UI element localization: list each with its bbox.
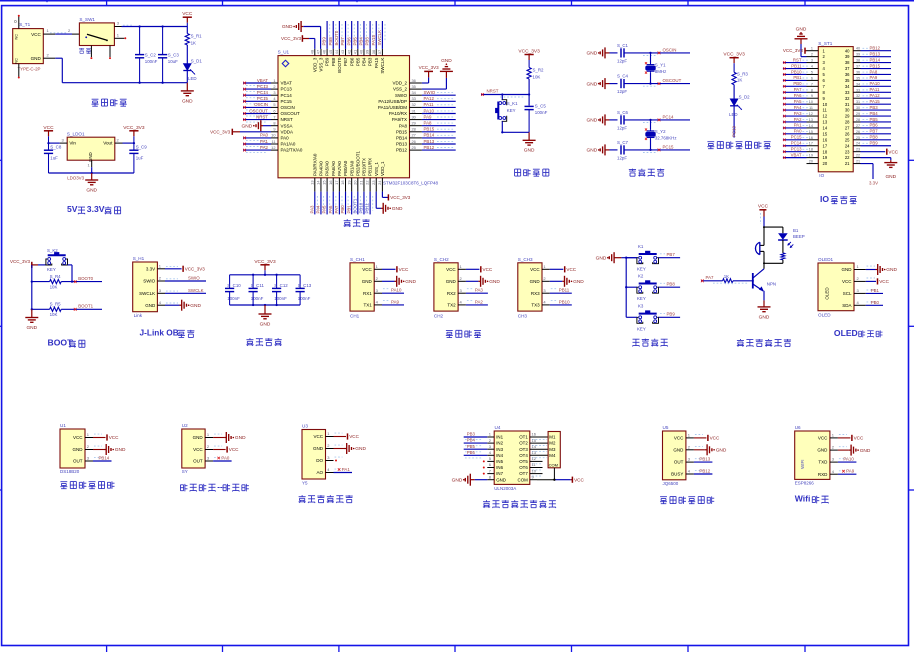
svg-text:PA15: PA15	[870, 99, 881, 104]
svg-text:100nF: 100nF	[145, 59, 158, 64]
svg-text:PA0: PA0	[221, 456, 230, 461]
svg-text:30: 30	[856, 106, 860, 110]
svg-text:38: 38	[856, 59, 860, 63]
svg-text:PB1: PB1	[346, 205, 351, 214]
svg-text:IN2: IN2	[496, 441, 503, 446]
svg-text:PB3: PB3	[368, 57, 373, 66]
svg-text:PA5/A0: PA5/A0	[325, 161, 330, 176]
svg-text:33: 33	[856, 88, 860, 92]
svg-text:34: 34	[845, 84, 850, 89]
svg-text:OUT: OUT	[73, 459, 83, 464]
svg-text:OLED: OLED	[818, 312, 831, 317]
svg-text:38: 38	[845, 60, 850, 65]
svg-text:PB6: PB6	[346, 37, 351, 46]
svg-text:BEEP: BEEP	[793, 234, 805, 239]
svg-text:VCC: VCC	[399, 267, 409, 272]
svg-text:12: 12	[823, 114, 828, 119]
svg-text:PA5: PA5	[322, 205, 327, 214]
svg-text:33: 33	[845, 90, 850, 95]
svg-text:U1: U1	[60, 423, 66, 428]
svg-text:PC14: PC14	[281, 93, 293, 98]
svg-text:PB12: PB12	[699, 469, 710, 474]
svg-text:PA4/A0: PA4/A0	[319, 161, 324, 176]
svg-text:5: 5	[811, 70, 813, 74]
svg-text:CH3: CH3	[518, 313, 528, 318]
svg-text:23: 23	[845, 149, 850, 154]
svg-text:PB8: PB8	[328, 37, 333, 46]
svg-text:M3: M3	[549, 447, 556, 452]
svg-text:PB9: PB9	[667, 311, 676, 316]
svg-text:PA7: PA7	[706, 275, 715, 280]
svg-text:IO: IO	[819, 173, 824, 178]
svg-text:M2: M2	[549, 441, 556, 446]
svg-text:39: 39	[365, 50, 370, 54]
svg-text:VCC: VCC	[530, 267, 540, 272]
svg-text:PC13: PC13	[257, 84, 269, 89]
svg-text:VCC: VCC	[362, 267, 372, 272]
svg-text:PA10: PA10	[870, 81, 881, 86]
svg-text:OSCIN: OSCIN	[281, 105, 295, 110]
svg-text:S_H1: S_H1	[133, 256, 145, 261]
svg-text:35: 35	[845, 78, 850, 83]
svg-text:IN4: IN4	[496, 453, 503, 458]
svg-text:PB11: PB11	[365, 203, 370, 214]
svg-text:PB3: PB3	[870, 105, 879, 110]
svg-text:PA11: PA11	[870, 87, 880, 92]
svg-text:CH1: CH1	[350, 313, 360, 318]
svg-text:GND: GND	[392, 206, 403, 212]
svg-text:PA2/TX/A0: PA2/TX/A0	[281, 148, 303, 153]
svg-text:PB14: PB14	[870, 57, 881, 62]
svg-text:8: 8	[811, 88, 813, 92]
svg-text:VCC_3V3: VCC_3V3	[10, 259, 31, 264]
svg-text:23: 23	[856, 148, 860, 152]
svg-text:28: 28	[845, 120, 850, 125]
svg-text:Vout: Vout	[103, 141, 113, 146]
svg-text:BOOT0: BOOT0	[78, 276, 93, 281]
svg-text:S_R4: S_R4	[50, 274, 62, 279]
svg-text:S_R5: S_R5	[50, 302, 62, 307]
svg-text:GND: GND	[587, 118, 598, 124]
svg-text:S_D1: S_D1	[191, 58, 203, 63]
svg-text:S_T1: S_T1	[19, 22, 30, 27]
svg-text:38: 38	[371, 50, 376, 54]
svg-text:IN5: IN5	[496, 459, 503, 464]
svg-text:VCC: VCC	[182, 11, 193, 17]
svg-text:VCC_3V3: VCC_3V3	[123, 125, 145, 131]
svg-text:PA11/USB/DM: PA11/USB/DM	[378, 105, 407, 110]
svg-text:VSS_3: VSS_3	[319, 57, 324, 72]
svg-text:LDO3V3: LDO3V3	[67, 176, 84, 181]
svg-text:IN6: IN6	[496, 465, 503, 470]
svg-text:S_R1: S_R1	[191, 34, 203, 39]
svg-text:15: 15	[322, 181, 327, 185]
svg-text:S_CH1: S_CH1	[350, 257, 365, 262]
svg-text:10uF: 10uF	[168, 59, 178, 64]
svg-text:26: 26	[412, 139, 416, 144]
svg-text:16: 16	[328, 181, 333, 185]
svg-text:S_C7: S_C7	[617, 140, 629, 145]
svg-text:PA3/RX/A0: PA3/RX/A0	[312, 153, 317, 176]
svg-text:VCC_3V3: VCC_3V3	[783, 48, 804, 53]
svg-text:PB15: PB15	[396, 129, 408, 134]
svg-text:OLED1: OLED1	[818, 257, 834, 262]
svg-text:10: 10	[823, 102, 828, 107]
svg-text:100nF: 100nF	[251, 296, 264, 301]
svg-text:S_K2: S_K2	[47, 248, 58, 253]
svg-text:3.3V: 3.3V	[869, 181, 878, 186]
svg-text:OT3: OT3	[519, 447, 528, 452]
svg-text:10: 10	[532, 468, 537, 473]
svg-text:100nF: 100nF	[298, 296, 311, 301]
svg-text:10: 10	[809, 100, 813, 104]
svg-text:PC14: PC14	[663, 114, 675, 119]
svg-text:19: 19	[809, 154, 813, 158]
svg-text:25: 25	[856, 136, 860, 140]
svg-text:NRST: NRST	[487, 89, 499, 94]
svg-text:PA12: PA12	[870, 93, 881, 98]
svg-text:GND: GND	[886, 267, 897, 273]
svg-text:32: 32	[845, 96, 850, 101]
svg-text:13: 13	[532, 450, 537, 455]
svg-text:GND: GND	[88, 152, 93, 162]
svg-text:PB2/BOOT1: PB2/BOOT1	[355, 150, 360, 176]
svg-text:OSCOUT: OSCOUT	[663, 78, 682, 83]
svg-text:5: 5	[273, 102, 275, 107]
svg-text:GND: GND	[587, 51, 598, 57]
svg-text:VCC: VCC	[758, 204, 769, 210]
svg-text:GND: GND	[355, 446, 366, 452]
svg-text:OSCIN: OSCIN	[254, 102, 268, 107]
svg-text:40: 40	[856, 47, 860, 51]
svg-text:1: 1	[273, 78, 275, 83]
svg-text:VCC_3V3: VCC_3V3	[518, 49, 540, 55]
svg-text:8: 8	[273, 121, 275, 126]
svg-text:PB3: PB3	[365, 37, 370, 46]
svg-text:PA6/A0: PA6/A0	[331, 161, 336, 176]
svg-text:PB1/A0: PB1/A0	[349, 160, 354, 176]
svg-text:GND: GND	[115, 447, 126, 453]
svg-text:31: 31	[856, 100, 860, 104]
svg-text:RX1: RX1	[363, 291, 372, 296]
svg-text:GND: GND	[496, 477, 506, 482]
svg-text:PB6: PB6	[349, 57, 354, 66]
svg-text:S_K1: S_K1	[507, 101, 518, 106]
svg-text:37: 37	[845, 66, 850, 71]
svg-text:GND: GND	[405, 279, 416, 285]
svg-text:OT4: OT4	[519, 453, 528, 458]
svg-text:IN1: IN1	[496, 435, 503, 440]
svg-text:PB0/A0: PB0/A0	[343, 160, 348, 176]
svg-text:B1: B1	[793, 228, 799, 233]
svg-text:OUT: OUT	[674, 460, 684, 465]
svg-text:13: 13	[309, 181, 314, 185]
svg-text:PB13: PB13	[424, 139, 435, 144]
svg-text:PB7: PB7	[667, 252, 676, 257]
svg-text:GND: GND	[31, 56, 42, 61]
svg-text:PA6: PA6	[794, 93, 802, 98]
svg-text:10K: 10K	[50, 312, 58, 317]
svg-text:GND: GND	[145, 303, 156, 308]
svg-text:AO: AO	[316, 470, 323, 475]
svg-text:KEY: KEY	[637, 326, 646, 331]
svg-text:16: 16	[823, 137, 828, 142]
svg-text:VCC_3V3: VCC_3V3	[210, 130, 231, 135]
svg-text:2: 2	[811, 53, 813, 57]
svg-text:42: 42	[346, 50, 351, 54]
svg-text:15: 15	[823, 131, 828, 136]
svg-text:PB10: PB10	[791, 69, 802, 74]
svg-text:S_Y2: S_Y2	[655, 129, 666, 134]
svg-text:PC13: PC13	[732, 125, 737, 137]
svg-text:25: 25	[412, 145, 416, 150]
svg-text:PC13: PC13	[281, 87, 293, 92]
svg-text:TYPE-C-2P: TYPE-C-2P	[18, 67, 41, 72]
svg-text:GND: GND	[596, 255, 607, 261]
svg-text:GND: GND	[190, 303, 201, 309]
svg-text:IN7: IN7	[496, 471, 503, 476]
svg-text:VCC: VCC	[674, 436, 684, 441]
svg-text:S_C3: S_C3	[168, 52, 180, 57]
svg-text:OSCOUT: OSCOUT	[281, 111, 301, 116]
svg-text:1: 1	[811, 47, 813, 51]
svg-text:3: 3	[811, 59, 813, 63]
svg-text:SWCLK: SWCLK	[139, 291, 155, 296]
svg-text:PA8: PA8	[424, 121, 433, 126]
svg-text:VDD_2: VDD_2	[392, 81, 407, 86]
svg-text:5V: 5V	[67, 204, 78, 214]
svg-text:27: 27	[412, 133, 416, 138]
svg-text:PA0: PA0	[794, 129, 802, 134]
svg-text:SCL: SCL	[843, 291, 852, 296]
svg-text:17: 17	[823, 143, 828, 148]
svg-text:PA15: PA15	[371, 35, 376, 46]
svg-text:40: 40	[845, 48, 850, 53]
svg-text:NC: NC	[14, 34, 18, 40]
svg-text:VCC: VCC	[109, 435, 119, 440]
svg-text:PA11: PA11	[424, 102, 435, 107]
svg-text:ULN2003A: ULN2003A	[494, 486, 516, 491]
svg-text:PC15: PC15	[257, 96, 269, 101]
svg-text:VCC: VCC	[854, 436, 864, 441]
svg-text:GND: GND	[235, 435, 246, 441]
svg-text:GND: GND	[362, 279, 373, 284]
svg-text:VBAT: VBAT	[281, 81, 293, 86]
svg-text:PB10: PB10	[359, 202, 364, 213]
svg-text:IN3: IN3	[496, 447, 503, 452]
svg-text:30: 30	[845, 108, 850, 113]
svg-text:20: 20	[809, 160, 813, 164]
svg-text:S_C12: S_C12	[274, 283, 288, 288]
svg-text:PA1: PA1	[794, 123, 802, 128]
svg-text:VCC: VCC	[888, 149, 898, 154]
svg-text:100nF: 100nF	[535, 110, 548, 115]
svg-text:PB1: PB1	[793, 75, 802, 80]
svg-text:VCC: VCC	[349, 434, 359, 439]
svg-text:PA12/USB/DP: PA12/USB/DP	[378, 99, 407, 104]
svg-text:M4: M4	[549, 453, 556, 458]
svg-text:PA0: PA0	[281, 136, 290, 141]
svg-text:1K: 1K	[191, 40, 196, 45]
svg-text:35: 35	[412, 84, 416, 89]
svg-text:PB12: PB12	[396, 148, 408, 153]
svg-text:PA3: PA3	[794, 111, 802, 116]
svg-text:S_R3: S_R3	[737, 71, 749, 76]
svg-text:OLED: OLED	[834, 328, 858, 338]
svg-text:OT6: OT6	[519, 465, 528, 470]
svg-text:PB0: PB0	[871, 300, 880, 305]
svg-text:GND: GND	[759, 314, 770, 320]
svg-text:18: 18	[809, 148, 813, 152]
svg-text:GND: GND	[817, 448, 828, 453]
svg-text:PA9: PA9	[870, 75, 878, 80]
svg-text:36: 36	[845, 72, 850, 77]
svg-text:19: 19	[346, 181, 351, 185]
svg-text:12: 12	[809, 112, 813, 116]
svg-text:22: 22	[845, 155, 850, 160]
svg-text:100nF: 100nF	[274, 296, 287, 301]
svg-text:35: 35	[856, 76, 860, 80]
svg-text:M1: M1	[549, 435, 556, 440]
svg-text:46: 46	[322, 50, 327, 54]
svg-text:S_CH2: S_CH2	[434, 257, 449, 262]
svg-text:VCC: VCC	[574, 477, 584, 482]
svg-text:PA4: PA4	[316, 205, 321, 214]
svg-text:PA6: PA6	[328, 205, 333, 214]
svg-text:STM32F103C8T6_LQFP48: STM32F103C8T6_LQFP48	[383, 181, 439, 186]
svg-text:VCC_3V3: VCC_3V3	[723, 52, 745, 58]
svg-text:OT7: OT7	[519, 471, 528, 476]
svg-text:PB14: PB14	[396, 136, 408, 141]
svg-text:BOOT0: BOOT0	[337, 57, 342, 73]
svg-text:PA7: PA7	[334, 205, 339, 214]
svg-text:IO: IO	[820, 194, 829, 204]
svg-text:PA7/A0: PA7/A0	[337, 161, 342, 176]
svg-text:9: 9	[273, 127, 275, 132]
svg-text:24: 24	[856, 142, 860, 146]
svg-text:VCC: VCC	[73, 435, 83, 440]
svg-text:S_C6: S_C6	[617, 110, 629, 115]
svg-text:GND: GND	[842, 267, 853, 272]
svg-text:15: 15	[809, 130, 813, 134]
svg-text:GND: GND	[573, 279, 584, 285]
svg-text:NPN: NPN	[767, 282, 776, 287]
svg-text:VCC: VCC	[566, 267, 576, 272]
svg-text:CH2: CH2	[434, 313, 444, 318]
svg-text:S_LDO1: S_LDO1	[67, 131, 85, 136]
svg-text:VCC: VCC	[710, 436, 720, 441]
svg-text:PC14: PC14	[257, 90, 269, 95]
svg-text:3.3V: 3.3V	[87, 204, 105, 214]
svg-text:GND: GND	[242, 123, 253, 129]
svg-text:28: 28	[412, 127, 416, 132]
svg-text:S_Y1: S_Y1	[655, 63, 666, 68]
svg-text:29: 29	[412, 121, 416, 126]
svg-text:ESP8266: ESP8266	[795, 480, 815, 485]
svg-text:KEY: KEY	[507, 108, 516, 113]
svg-text:6: 6	[273, 108, 275, 113]
svg-text:21: 21	[359, 181, 364, 185]
svg-text:VSSA: VSSA	[281, 123, 293, 128]
svg-text:PA2: PA2	[475, 299, 484, 304]
svg-text:VBAT: VBAT	[791, 152, 802, 157]
svg-text:Wifi: Wifi	[795, 493, 811, 503]
svg-text:PB14: PB14	[424, 133, 435, 138]
svg-text:S_C1: S_C1	[617, 43, 629, 48]
svg-text:3: 3	[273, 90, 275, 95]
svg-text:PB14: PB14	[99, 456, 110, 461]
svg-text:PB4: PB4	[467, 438, 476, 443]
svg-text:VCC: VCC	[446, 267, 456, 272]
svg-text:PA9: PA9	[424, 114, 433, 119]
svg-text:12: 12	[532, 456, 537, 461]
svg-text:15: 15	[532, 438, 537, 443]
svg-text:47: 47	[316, 50, 321, 54]
svg-text:PB0: PB0	[340, 205, 345, 214]
svg-text:SWCLK: SWCLK	[377, 30, 382, 46]
svg-text:VCC: VCC	[842, 279, 852, 284]
svg-text:U2: U2	[182, 423, 188, 428]
svg-text:VCC: VCC	[313, 434, 323, 439]
svg-text:VCC_3V3: VCC_3V3	[419, 65, 440, 70]
svg-text:KEY: KEY	[47, 267, 56, 272]
svg-text:21: 21	[856, 160, 860, 164]
svg-text:S_C13: S_C13	[298, 283, 312, 288]
svg-text:PB11: PB11	[791, 63, 802, 68]
svg-text:U3: U3	[302, 424, 308, 429]
svg-text:S_C8: S_C8	[50, 144, 62, 149]
svg-text:14: 14	[809, 124, 813, 128]
svg-text:PB8: PB8	[870, 135, 879, 140]
svg-text:PA15: PA15	[374, 57, 379, 68]
svg-text:PC15: PC15	[281, 99, 293, 104]
svg-text:PA7: PA7	[794, 87, 802, 92]
svg-text:21: 21	[845, 161, 850, 166]
svg-text:PB0: PB0	[793, 81, 802, 86]
svg-text:11: 11	[271, 139, 275, 144]
svg-text:10K: 10K	[50, 284, 58, 289]
svg-text:JQ6500: JQ6500	[663, 481, 679, 486]
svg-text:KEY: KEY	[637, 296, 646, 301]
svg-text:14: 14	[532, 444, 537, 449]
svg-text:S_SW1: S_SW1	[79, 17, 95, 22]
svg-text:GND: GND	[673, 447, 684, 452]
svg-text:43: 43	[340, 50, 345, 54]
svg-text:PB8: PB8	[331, 57, 336, 66]
svg-text:PB8: PB8	[667, 281, 676, 286]
svg-text:COM: COM	[549, 462, 558, 467]
svg-text:7: 7	[811, 82, 813, 86]
svg-text:VCC_3V3: VCC_3V3	[254, 259, 276, 265]
svg-text:PA3: PA3	[309, 205, 314, 214]
svg-text:12pF: 12pF	[617, 59, 627, 64]
svg-text:PA5: PA5	[794, 99, 802, 104]
svg-text:Y5: Y5	[302, 481, 308, 486]
svg-text:RXD: RXD	[818, 472, 828, 477]
svg-text:8MHz: 8MHz	[655, 69, 666, 74]
svg-text:17: 17	[334, 181, 339, 185]
svg-text:26: 26	[845, 131, 850, 136]
svg-text:PA2: PA2	[794, 117, 802, 122]
svg-text:VCC_3V3: VCC_3V3	[390, 195, 411, 200]
svg-text:--: --	[217, 482, 223, 491]
svg-text:S_CH3: S_CH3	[518, 257, 533, 262]
svg-text:LED: LED	[729, 112, 738, 117]
svg-text:RX2: RX2	[447, 291, 456, 296]
svg-text:29: 29	[856, 112, 860, 116]
svg-text:2: 2	[273, 84, 275, 89]
svg-text:31: 31	[412, 108, 416, 113]
